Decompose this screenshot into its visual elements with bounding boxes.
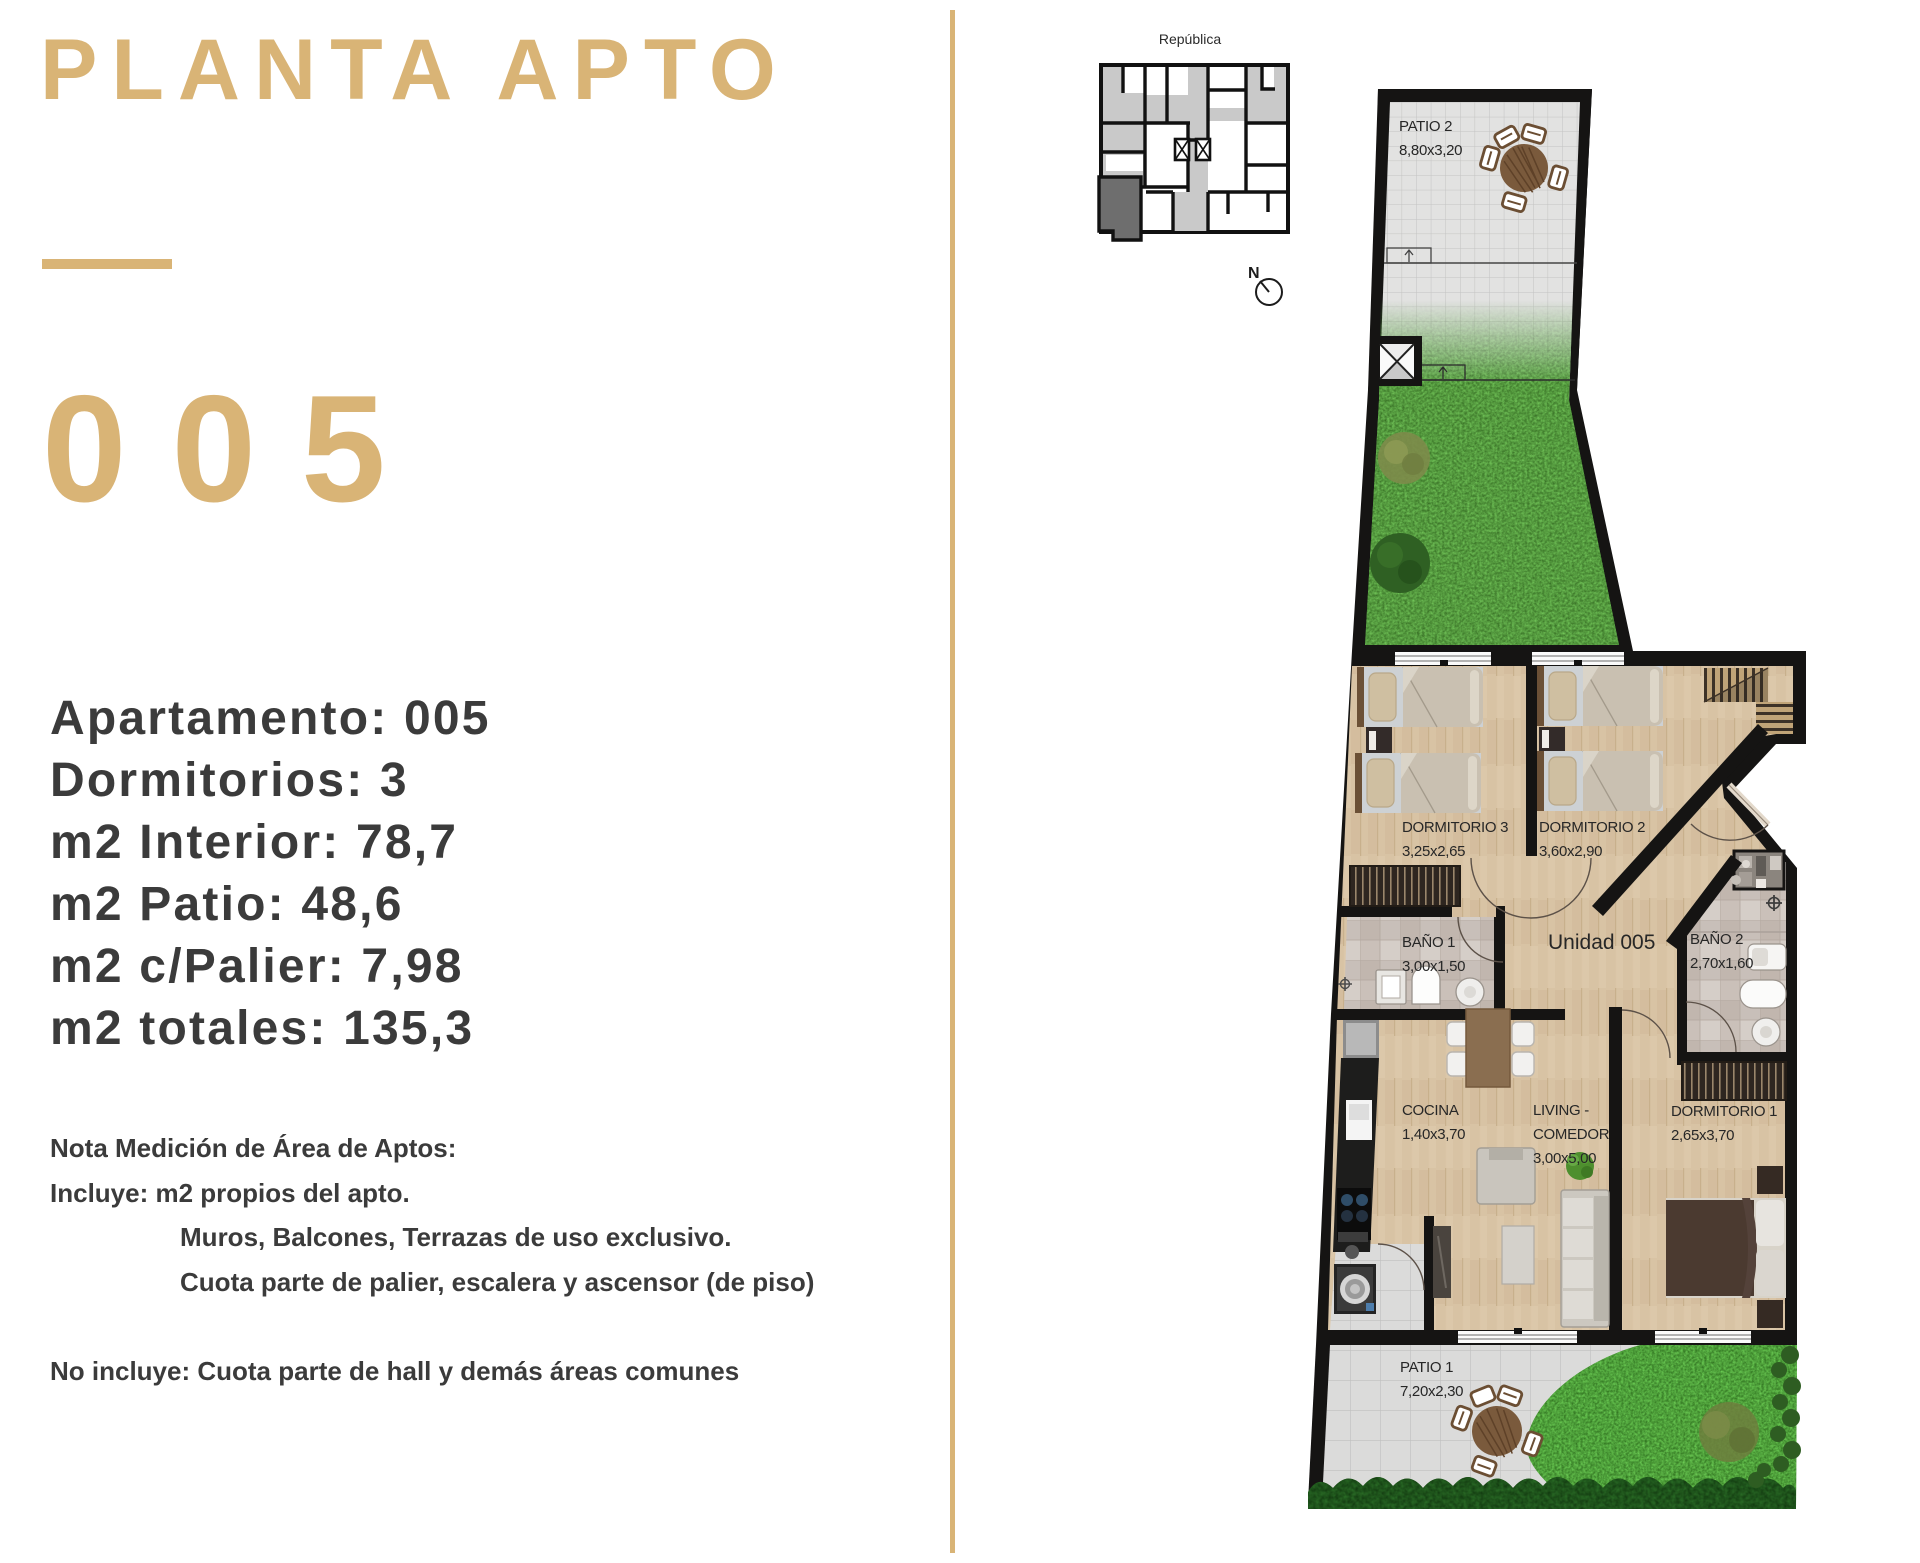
svg-text:DORMITORIO 3: DORMITORIO 3 — [1402, 819, 1508, 836]
svg-text:2,65x3,70: 2,65x3,70 — [1671, 1127, 1734, 1144]
svg-text:N: N — [1248, 265, 1260, 282]
svg-text:2,70x1,60: 2,70x1,60 — [1690, 955, 1753, 972]
svg-text:COCINA: COCINA — [1402, 1102, 1459, 1119]
svg-text:7,20x2,30: 7,20x2,30 — [1400, 1383, 1463, 1400]
svg-text:8,80x3,20: 8,80x3,20 — [1399, 142, 1462, 159]
svg-text:PATIO 1: PATIO 1 — [1400, 1359, 1453, 1376]
svg-text:1,40x3,70: 1,40x3,70 — [1402, 1126, 1465, 1143]
svg-text:COMEDOR: COMEDOR — [1533, 1126, 1610, 1143]
svg-text:DORMITORIO 2: DORMITORIO 2 — [1539, 819, 1645, 836]
svg-text:3,25x2,65: 3,25x2,65 — [1402, 843, 1465, 860]
svg-text:BAÑO 2: BAÑO 2 — [1690, 931, 1743, 948]
svg-text:3,00x5,00: 3,00x5,00 — [1533, 1150, 1596, 1167]
svg-text:LIVING -: LIVING - — [1533, 1102, 1589, 1119]
svg-text:BAÑO 1: BAÑO 1 — [1402, 934, 1455, 951]
svg-text:3,60x2,90: 3,60x2,90 — [1539, 843, 1602, 860]
svg-text:PATIO 2: PATIO 2 — [1399, 118, 1452, 135]
svg-text:3,00x1,50: 3,00x1,50 — [1402, 958, 1465, 975]
svg-text:República: República — [1159, 31, 1221, 47]
svg-text:DORMITORIO 1: DORMITORIO 1 — [1671, 1103, 1777, 1120]
svg-text:Unidad 005: Unidad 005 — [1548, 931, 1655, 954]
